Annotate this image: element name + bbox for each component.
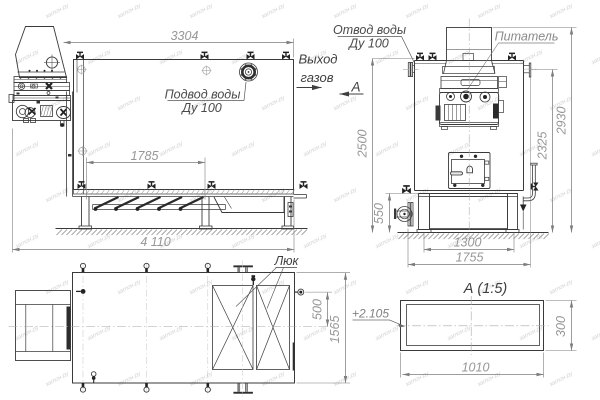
svg-text:А: А bbox=[350, 80, 360, 95]
svg-text:2325: 2325 bbox=[536, 132, 550, 161]
svg-text:2930: 2930 bbox=[555, 107, 569, 136]
svg-text:300: 300 bbox=[554, 316, 568, 337]
svg-text:Питатель: Питатель bbox=[495, 30, 559, 44]
svg-text:3304: 3304 bbox=[171, 29, 199, 43]
svg-text:2500: 2500 bbox=[356, 130, 370, 159]
svg-text:1755: 1755 bbox=[456, 251, 484, 265]
svg-text:Ду 100: Ду 100 bbox=[347, 37, 389, 51]
svg-text:Ду 100: Ду 100 bbox=[180, 101, 222, 115]
svg-text:1300: 1300 bbox=[454, 236, 482, 250]
svg-text:4 110: 4 110 bbox=[140, 235, 170, 249]
svg-text:1785: 1785 bbox=[131, 149, 159, 163]
svg-text:Выход: Выход bbox=[298, 52, 337, 67]
svg-text:1010: 1010 bbox=[462, 361, 490, 375]
svg-text:Отвод воды: Отвод воды bbox=[333, 23, 406, 37]
svg-text:Подвод воды: Подвод воды bbox=[165, 88, 241, 102]
svg-text:550: 550 bbox=[372, 203, 386, 224]
svg-text:газов: газов bbox=[300, 70, 333, 85]
svg-text:+2.105: +2.105 bbox=[352, 307, 389, 321]
svg-text:Люк: Люк bbox=[274, 254, 300, 268]
svg-text:А (1:5): А (1:5) bbox=[463, 281, 508, 297]
svg-text:500: 500 bbox=[311, 299, 325, 320]
svg-text:1565: 1565 bbox=[328, 316, 342, 344]
